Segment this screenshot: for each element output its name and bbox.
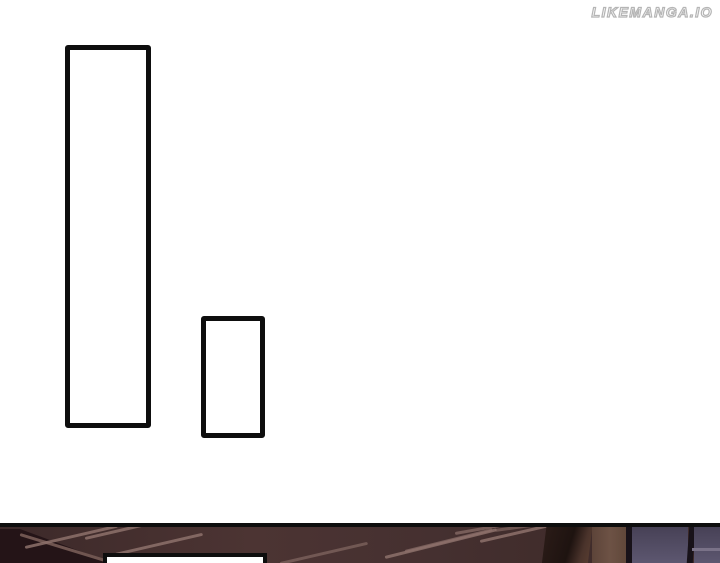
ceiling-support-beam xyxy=(541,525,592,563)
wood-pillar xyxy=(592,527,628,563)
speech-bubble-tall xyxy=(65,45,151,428)
site-watermark: LIKEMANGA.IO xyxy=(592,4,713,20)
speech-bubble-bottom-partial xyxy=(103,553,267,563)
window-pane xyxy=(632,527,688,563)
window-sill-line xyxy=(692,548,720,551)
comic-page: LIKEMANGA.IO xyxy=(0,0,720,563)
light-streak xyxy=(280,542,368,563)
window-pane xyxy=(694,527,720,563)
speech-bubble-small xyxy=(201,316,265,438)
